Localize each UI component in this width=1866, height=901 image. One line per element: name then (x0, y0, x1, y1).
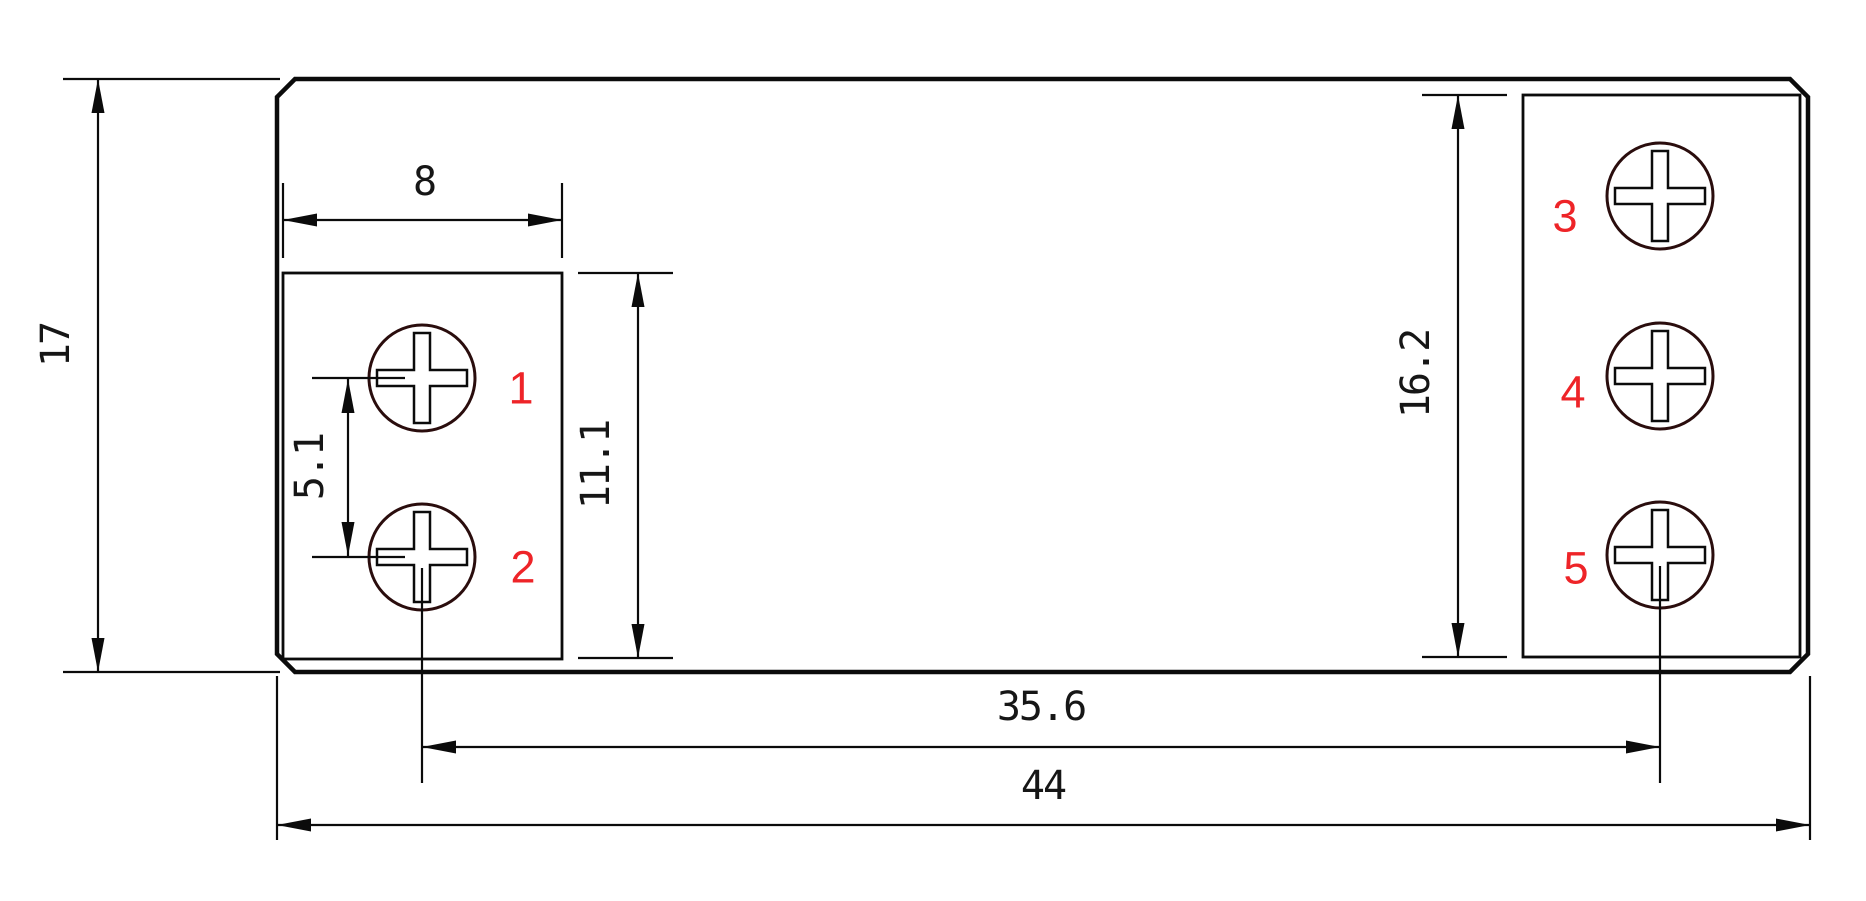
terminal-number-5: 5 (1563, 543, 1588, 594)
dimension-label-screw-span: 35.6 (997, 684, 1085, 730)
terminal-screws (369, 143, 1713, 610)
terminal-number-1: 1 (508, 363, 533, 414)
drawing-page: 17 8 5.1 11.1 16.2 (0, 0, 1866, 901)
technical-drawing-canvas: 17 8 5.1 11.1 16.2 (0, 0, 1866, 901)
terminal-number-3: 3 (1552, 191, 1577, 242)
dimension-label-overall-height: 17 (33, 323, 79, 367)
terminal-number-4: 4 (1560, 367, 1585, 418)
dimension-pad-width: 8 (283, 159, 562, 258)
dimension-overall-height: 17 (33, 79, 280, 672)
dimension-screw-span: 35.6 (422, 566, 1660, 783)
dimension-label-overall-width: 44 (1021, 763, 1066, 809)
terminal-number-2: 2 (510, 542, 535, 593)
dimension-label-screw-pitch: 5.1 (287, 434, 333, 500)
dimension-right-pad-height: 16.2 (1393, 95, 1507, 657)
dimension-label-pad-width: 8 (413, 159, 435, 205)
dimension-label-left-pad-height: 11.1 (573, 421, 619, 509)
dimension-left-pad-height: 11.1 (573, 273, 673, 658)
screw-terminal-3 (1607, 143, 1713, 249)
screw-terminal-4 (1607, 323, 1713, 429)
dimension-label-right-pad-height: 16.2 (1393, 330, 1439, 418)
